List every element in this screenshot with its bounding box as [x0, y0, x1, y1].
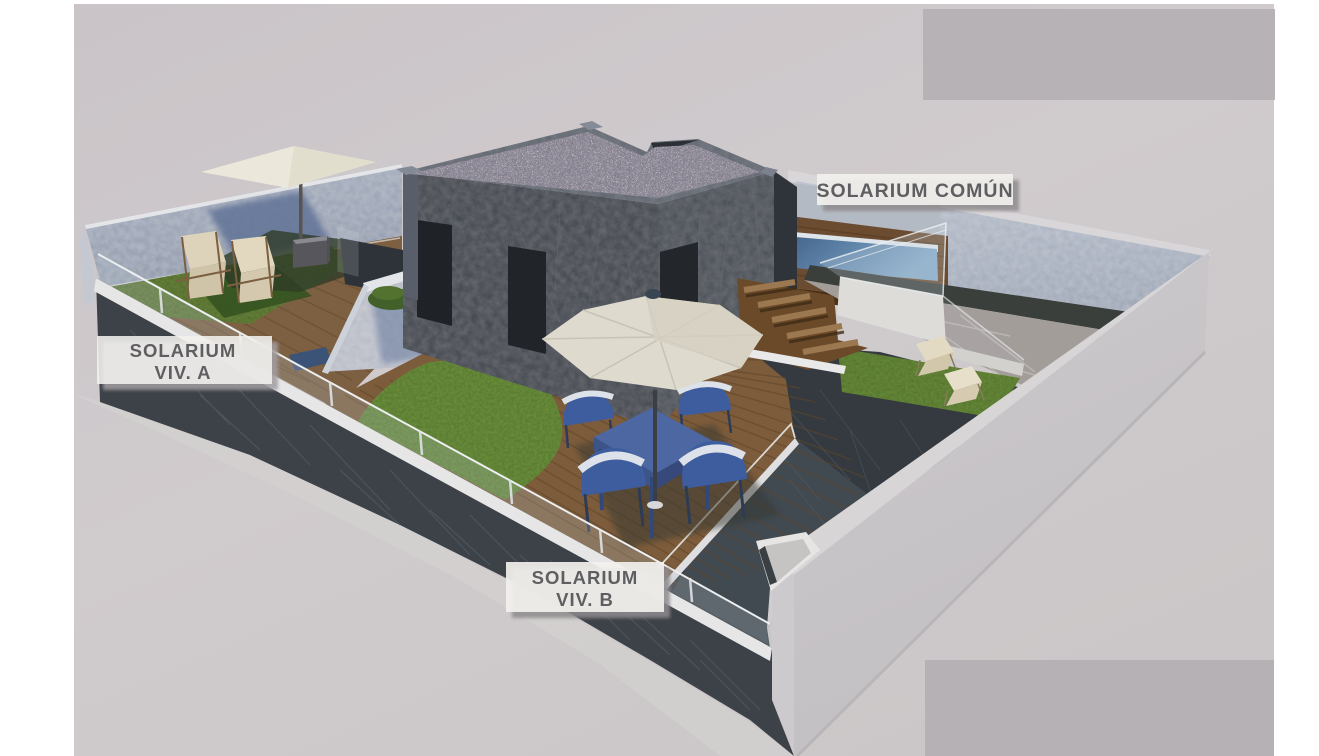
- svg-text:SOLARIUM: SOLARIUM: [130, 340, 237, 361]
- svg-text:SOLARIUM: SOLARIUM: [532, 567, 639, 588]
- svg-text:SOLARIUM COMÚN: SOLARIUM COMÚN: [816, 178, 1013, 202]
- svg-text:VIV. A: VIV. A: [154, 362, 211, 383]
- svg-text:VIV. B: VIV. B: [556, 589, 614, 610]
